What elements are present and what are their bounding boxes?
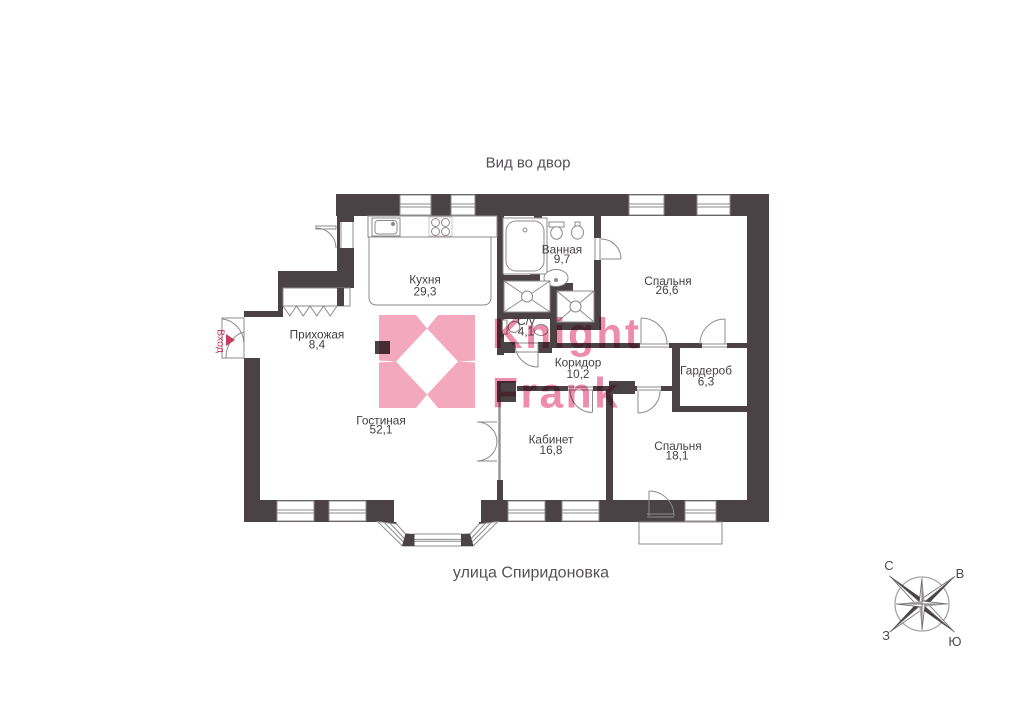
svg-text:4,1: 4,1 bbox=[518, 325, 534, 339]
svg-text:9,7: 9,7 bbox=[554, 252, 570, 266]
svg-text:С: С bbox=[884, 558, 893, 573]
svg-text:26,6: 26,6 bbox=[656, 283, 679, 297]
svg-text:16,8: 16,8 bbox=[540, 443, 563, 457]
svg-text:Frank: Frank bbox=[492, 371, 620, 418]
svg-text:З: З bbox=[882, 628, 890, 643]
svg-text:6,3: 6,3 bbox=[698, 375, 715, 389]
svg-text:В: В bbox=[956, 566, 965, 581]
svg-text:Вид во двор: Вид во двор bbox=[486, 155, 571, 172]
svg-text:52,1: 52,1 bbox=[370, 423, 393, 437]
svg-text:Ю: Ю bbox=[948, 634, 961, 649]
svg-text:10,2: 10,2 bbox=[567, 367, 590, 381]
svg-text:29,3: 29,3 bbox=[414, 285, 437, 299]
svg-text:Knight: Knight bbox=[492, 311, 642, 358]
svg-text:улица Спиридоновка: улица Спиридоновка bbox=[453, 565, 609, 582]
svg-text:18,1: 18,1 bbox=[666, 449, 689, 463]
svg-text:Вход: Вход bbox=[215, 329, 227, 353]
svg-text:8,4: 8,4 bbox=[309, 338, 326, 352]
